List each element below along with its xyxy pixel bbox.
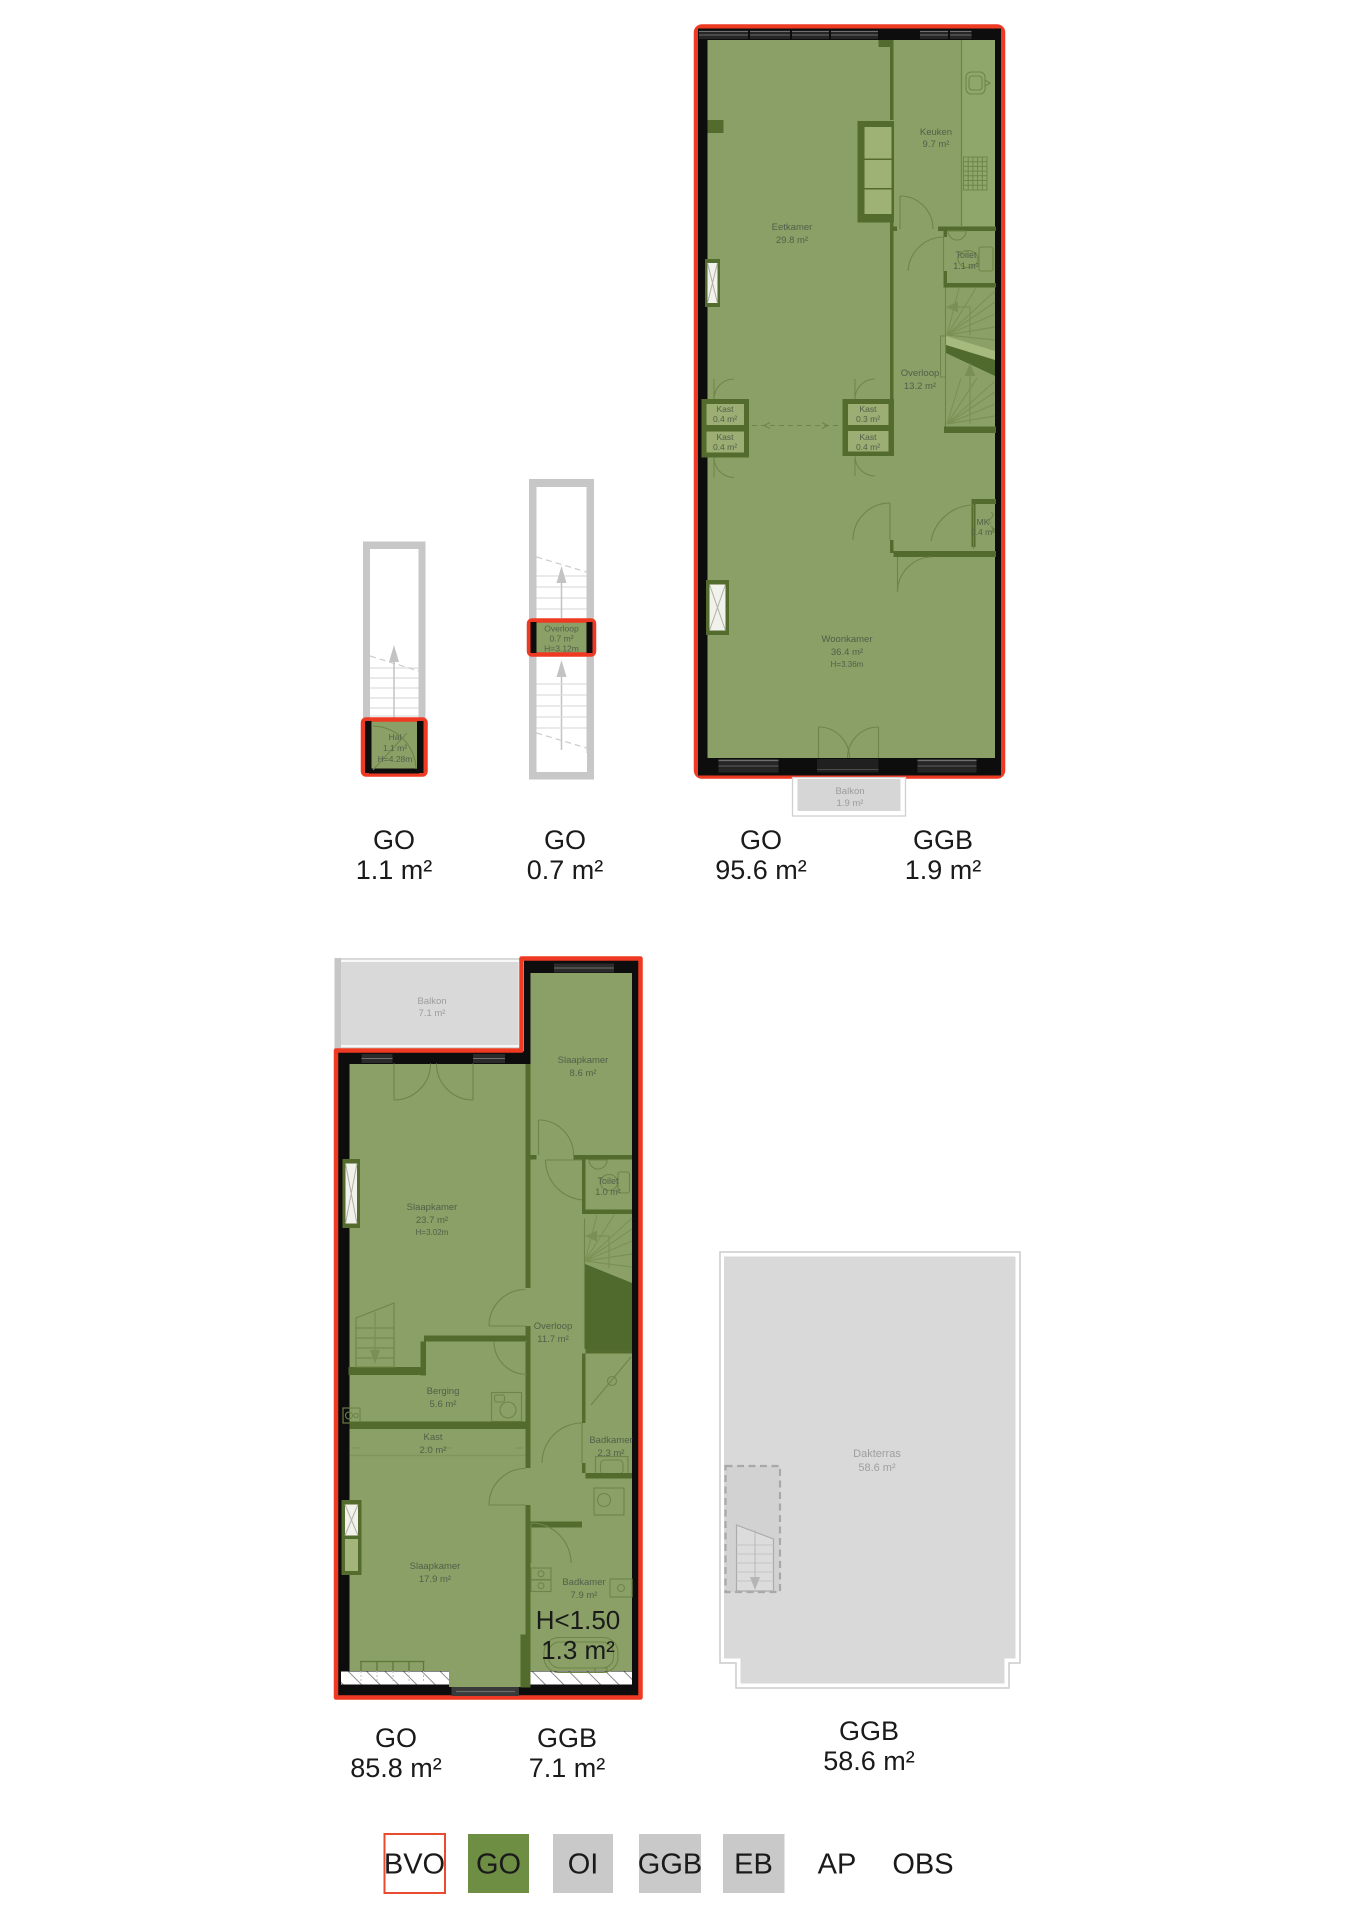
svg-text:Kast: Kast (423, 1432, 442, 1443)
svg-text:Badkamer: Badkamer (562, 1577, 605, 1588)
svg-text:Overloop: Overloop (534, 1321, 573, 1332)
svg-text:Woonkamer: Woonkamer (821, 634, 872, 645)
svg-text:5.6 m²: 5.6 m² (430, 1399, 457, 1410)
svg-text:GGB: GGB (537, 1723, 597, 1753)
svg-text:Kast: Kast (859, 432, 877, 442)
svg-text:H=3.36m: H=3.36m (831, 660, 864, 669)
svg-text:Slaapkamer: Slaapkamer (558, 1055, 609, 1066)
svg-text:0.3 m²: 0.3 m² (856, 414, 880, 424)
svg-text:Balkon: Balkon (835, 786, 864, 797)
svg-text:95.6 m²: 95.6 m² (715, 855, 807, 885)
svg-text:1.1 m²: 1.1 m² (383, 743, 407, 753)
svg-text:1.3 m²: 1.3 m² (541, 1635, 615, 1665)
svg-text:Kast: Kast (859, 404, 877, 414)
svg-text:H=4.28m: H=4.28m (378, 754, 413, 764)
svg-text:EB: EB (734, 1849, 773, 1881)
svg-text:Badkamer: Badkamer (589, 1435, 632, 1446)
svg-text:Eetkamer: Eetkamer (772, 222, 813, 233)
svg-text:1.9 m²: 1.9 m² (905, 855, 982, 885)
svg-text:2.3 m²: 2.3 m² (598, 1448, 625, 1459)
svg-text:GO: GO (373, 825, 415, 855)
svg-text:Hal: Hal (389, 732, 402, 742)
svg-text:7.1 m²: 7.1 m² (529, 1753, 606, 1783)
svg-text:Toilet: Toilet (955, 250, 977, 260)
svg-text:0.7 m²: 0.7 m² (549, 634, 573, 644)
svg-text:1.1 m²: 1.1 m² (356, 855, 433, 885)
svg-text:Slaapkamer: Slaapkamer (407, 1202, 458, 1213)
svg-text:0.4 m²: 0.4 m² (713, 442, 737, 452)
svg-text:GGB: GGB (638, 1849, 702, 1881)
svg-text:GGB: GGB (913, 825, 973, 855)
svg-text:58.6 m²: 58.6 m² (858, 1462, 896, 1474)
svg-text:AP: AP (818, 1849, 857, 1881)
svg-text:17.9 m²: 17.9 m² (419, 1574, 451, 1585)
svg-text:Toilet: Toilet (597, 1176, 619, 1186)
svg-text:7.9 m²: 7.9 m² (571, 1590, 598, 1601)
svg-text:Keuken: Keuken (920, 127, 952, 138)
svg-text:H<1.50: H<1.50 (536, 1605, 621, 1635)
svg-text:GGB: GGB (839, 1716, 899, 1746)
svg-text:29.8 m²: 29.8 m² (776, 235, 808, 246)
svg-text:Slaapkamer: Slaapkamer (410, 1561, 461, 1572)
svg-text:Berging: Berging (427, 1386, 460, 1397)
svg-text:8.6 m²: 8.6 m² (570, 1068, 597, 1079)
svg-text:7.1 m²: 7.1 m² (419, 1008, 446, 1019)
svg-text:OI: OI (568, 1849, 599, 1881)
svg-text:Overloop: Overloop (544, 624, 579, 634)
svg-text:Overloop: Overloop (901, 368, 940, 379)
svg-text:0.4 m²: 0.4 m² (713, 414, 737, 424)
svg-text:58.6 m²: 58.6 m² (823, 1746, 915, 1776)
svg-text:H=3.12m: H=3.12m (544, 644, 579, 654)
svg-text:GO: GO (740, 825, 782, 855)
svg-text:GO: GO (375, 1723, 417, 1753)
svg-text:9.7 m²: 9.7 m² (923, 139, 950, 150)
svg-text:1.0 m²: 1.0 m² (595, 1187, 621, 1197)
svg-text:Kast: Kast (716, 404, 734, 414)
svg-text:H=3.02m: H=3.02m (416, 1228, 449, 1237)
svg-text:85.8 m²: 85.8 m² (350, 1753, 442, 1783)
svg-text:1.9 m²: 1.9 m² (837, 798, 864, 809)
svg-text:11.7 m²: 11.7 m² (537, 1334, 569, 1345)
svg-text:0.4 m²: 0.4 m² (856, 442, 880, 452)
svg-text:OBS: OBS (892, 1849, 953, 1881)
svg-text:Balkon: Balkon (417, 996, 446, 1007)
svg-text:GO: GO (476, 1849, 521, 1881)
svg-text:13.2 m²: 13.2 m² (904, 381, 936, 392)
svg-text:MK: MK (977, 517, 990, 527)
svg-text:23.7 m²: 23.7 m² (416, 1215, 448, 1226)
svg-text:1.1 m²: 1.1 m² (953, 261, 979, 271)
svg-text:BVO: BVO (384, 1849, 445, 1881)
svg-text:GO: GO (544, 825, 586, 855)
svg-text:Dakterras: Dakterras (853, 1448, 901, 1460)
svg-text:2.0 m²: 2.0 m² (420, 1445, 447, 1456)
svg-text:Kast: Kast (716, 432, 734, 442)
svg-text:0.4 m²: 0.4 m² (971, 527, 995, 537)
svg-text:36.4 m²: 36.4 m² (831, 647, 863, 658)
svg-text:0.7 m²: 0.7 m² (527, 855, 604, 885)
